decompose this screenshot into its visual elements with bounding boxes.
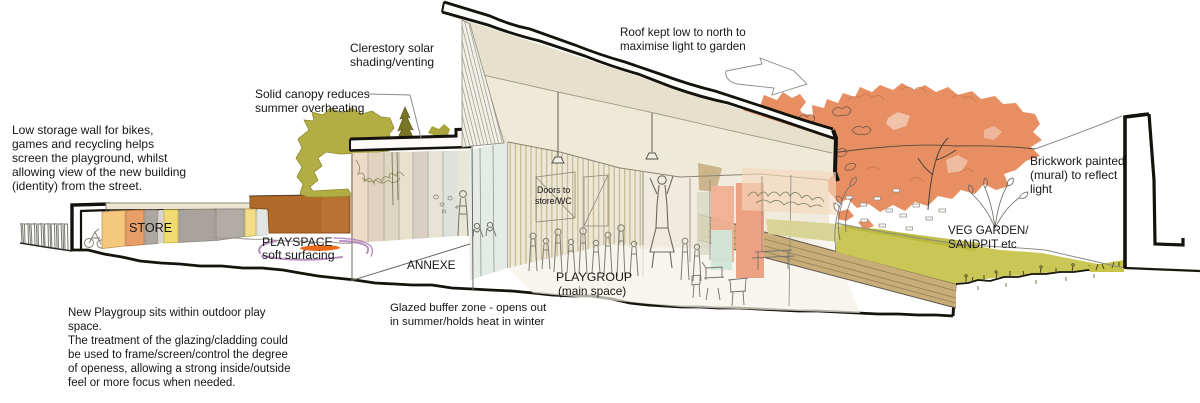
svg-text:Brickwork painted: Brickwork painted (1030, 154, 1125, 168)
svg-text:The treatment of the glazing/c: The treatment of the glazing/cladding co… (68, 335, 288, 347)
svg-text:ANNEXE: ANNEXE (407, 258, 456, 272)
svg-text:Solid canopy reduces: Solid canopy reduces (255, 87, 370, 101)
svg-text:shading/venting: shading/venting (350, 55, 434, 69)
svg-text:PLAYSPACE: PLAYSPACE (262, 235, 333, 249)
svg-text:PLAYGROUP: PLAYGROUP (556, 270, 632, 284)
svg-text:Roof kept low to north to: Roof kept low to north to (620, 26, 746, 39)
svg-text:STORE: STORE (129, 221, 172, 235)
svg-text:be used to frame/screen/contro: be used to frame/screen/control the degr… (68, 349, 288, 361)
svg-text:of openess, allowing a strong: of openess, allowing a strong inside/out… (68, 363, 290, 375)
svg-text:Clerestory solar: Clerestory solar (350, 41, 434, 55)
svg-text:(identity) from the street.: (identity) from the street. (12, 179, 142, 193)
svg-text:store/WC: store/WC (535, 196, 572, 206)
svg-text:Glazed buffer zone - opens out: Glazed buffer zone - opens out (390, 302, 547, 314)
svg-text:feel or more focus when needed: feel or more focus when needed. (68, 377, 236, 389)
svg-text:light: light (1030, 182, 1053, 196)
svg-text:screen the playground, whilst: screen the playground, whilst (12, 151, 168, 165)
svg-text:summer overheating: summer overheating (255, 101, 364, 115)
svg-text:VEG GARDEN/: VEG GARDEN/ (948, 224, 1029, 237)
svg-text:Low storage wall for bikes,: Low storage wall for bikes, (12, 123, 153, 137)
svg-text:New Playgroup sits within outd: New Playgroup sits within outdoor play (68, 307, 266, 319)
svg-text:Doors to: Doors to (537, 185, 570, 195)
svg-text:soft surfacing: soft surfacing (262, 248, 334, 262)
svg-text:space.: space. (68, 321, 102, 333)
svg-text:maximise light to garden: maximise light to garden (620, 40, 746, 53)
svg-text:(main space): (main space) (558, 284, 626, 298)
svg-text:(mural) to reflect: (mural) to reflect (1030, 168, 1118, 182)
svg-text:allowing view of the new build: allowing view of the new building (12, 165, 186, 179)
svg-text:in summer/holds heat in winter: in summer/holds heat in winter (390, 316, 545, 328)
svg-text:SANDPIT etc: SANDPIT etc (948, 238, 1017, 251)
svg-text:games and recycling helps: games and recycling helps (12, 137, 154, 151)
